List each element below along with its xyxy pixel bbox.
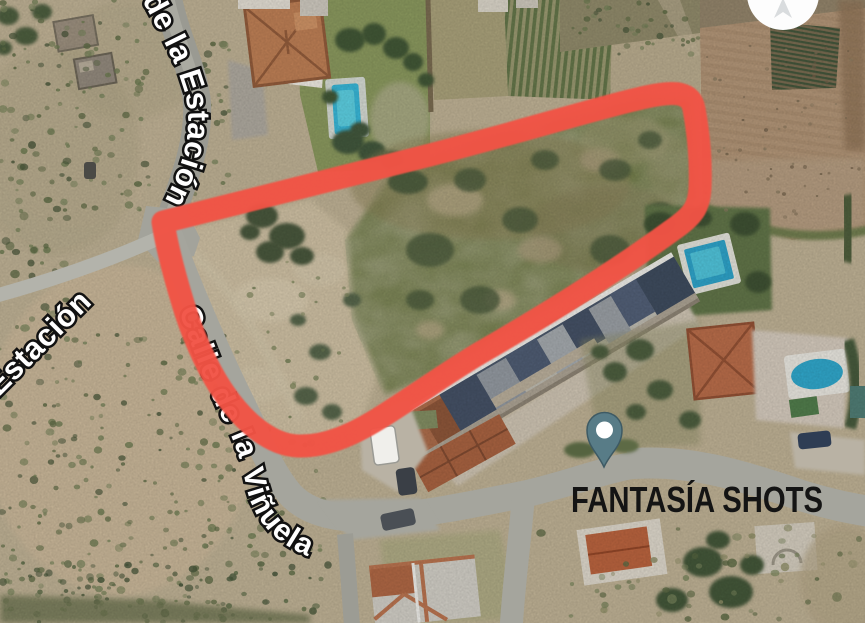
svg-text:FANTASÍA SHOTS: FANTASÍA SHOTS [571,479,823,520]
